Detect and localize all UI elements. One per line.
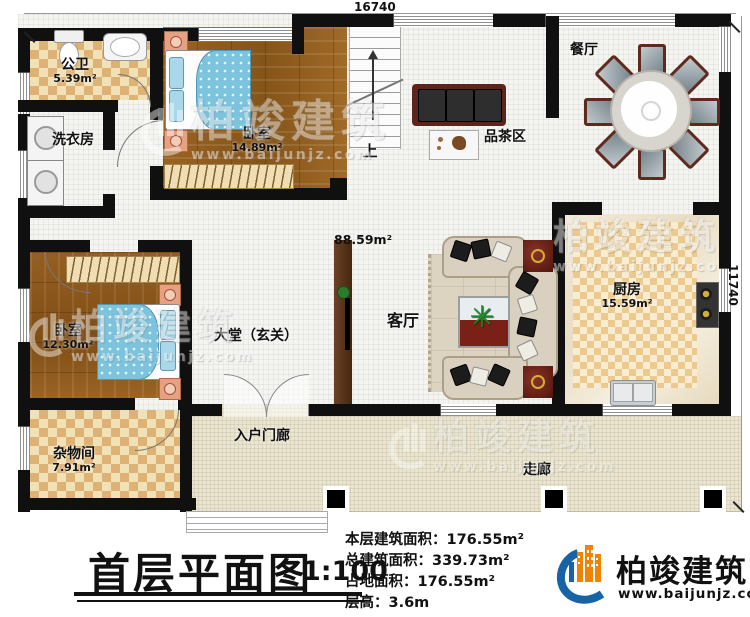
room-label-tea-area: 品茶区 [484,129,526,145]
stat-floor-area: 本层建筑面积：176.55m² [345,528,524,549]
room-name: 走廊 [523,462,551,478]
room-name: 大堂（玄关） [214,328,298,344]
wall [103,112,115,150]
room-name: 客厅 [387,312,419,330]
stairs-arrowhead [368,50,378,59]
wall [18,398,135,410]
wall [151,188,347,200]
brand-url: www.baijunjz.com [618,586,750,602]
room-name: 品茶区 [484,129,526,145]
window [18,288,30,344]
wall [18,100,118,112]
watermark-name: 柏竣建筑 [553,220,719,256]
stove-burner [700,288,712,300]
stat-label: 本层建筑面积： [345,532,447,548]
sofa-cushion [474,89,502,122]
pillow [160,341,176,371]
wall [693,202,731,215]
room-name: 入户门廊 [234,428,290,444]
window [440,404,498,416]
room-label-storage: 杂物间 7.91m² [52,446,95,475]
wall [180,240,192,412]
room-label-bathroom: 公卫 5.39m² [53,57,96,86]
room-label-entry-porch: 入户门廊 [234,428,290,444]
room-name: 洗衣房 [52,132,94,148]
room-name: 卧室 [231,126,282,142]
dimension-line-right [741,16,742,510]
stat-value: 176.55m² [447,532,524,548]
brand-name: 柏竣建筑 [616,546,748,591]
window [719,26,731,74]
sofa-cushion [446,89,474,122]
dining-chair [638,148,666,180]
stairs-up-label: 上 [362,143,377,160]
room-label-corridor: 走廊 [523,462,551,478]
pillow [169,90,184,122]
dimension-right: 11740 [726,264,740,306]
side-table [523,366,553,398]
wall [308,404,440,416]
pillow [169,57,184,89]
column [704,490,722,508]
room-name: 餐厅 [570,42,598,58]
wall [496,404,602,416]
stat-value: 3.6m [389,595,430,611]
room-label-living: 客厅 [387,312,419,330]
title-underline-thin [77,600,365,602]
stat-label: 层高： [345,595,389,611]
wall [150,41,163,112]
watermark-clip: 柏竣建筑 www.baijunjz.com [553,216,719,278]
room-area: 5.39m² [53,73,96,86]
wall [719,72,731,268]
stat-land-area: 占地面积：176.55m² [345,570,495,591]
room-area: 15.59m² [601,298,652,311]
pillow [160,310,176,340]
wall [719,312,731,416]
wall [292,14,393,27]
sofa-pillow [516,316,537,337]
column [327,490,345,508]
steps [186,511,328,533]
watermark-url: www.baijunjz.com [553,259,719,275]
room-area: 7.91m² [52,462,95,475]
window [393,14,495,27]
nightstand [159,378,181,400]
wall [18,498,196,510]
wall [330,178,347,200]
room-label-bedroom2: 卧室 12.30m² [42,323,93,352]
plant-icon: ✳ [466,302,498,334]
room-label-laundry: 洗衣房 [52,132,94,148]
room-area: 12.30m² [42,339,93,352]
tea-cup [438,137,443,142]
wall [18,240,90,252]
hall-area-label: 88.59m² [334,232,392,247]
room-label-bedroom1: 卧室 14.89m² [231,126,282,155]
kitchen-sink-basin [613,383,633,402]
stat-total-area: 总建筑面积：339.73m² [345,549,509,570]
window [18,426,30,472]
wall [493,14,545,27]
room-name: 杂物间 [52,446,95,462]
room-name: 卧室 [42,323,93,339]
stat-floor-height: 层高：3.6m [345,591,429,612]
wardrobe [164,164,294,189]
column [545,490,563,508]
bed-blanket [196,50,251,130]
stairs-arrow [372,58,374,120]
tv [345,298,350,350]
stat-value: 176.55m² [418,574,495,590]
nightstand [159,284,181,306]
stove-burner [700,308,712,320]
bed-blanket [97,304,159,380]
wall [672,404,731,416]
room-name: 公卫 [53,57,96,73]
room-label-dining: 餐厅 [570,42,598,58]
brand-logo-icon [556,540,610,604]
title-underline [74,592,362,596]
wall [150,112,163,120]
room-name: 厨房 [601,282,652,298]
stat-value: 339.73m² [432,553,509,569]
stairs [349,27,401,149]
room-area: 14.89m² [231,142,282,155]
side-table [523,240,553,272]
floorplan-page: ✳ 公卫 5.39m² 洗衣房 卧室 14.89m² 餐厅 [0,0,750,617]
wall [180,398,192,512]
floorplan: ✳ 公卫 5.39m² 洗衣房 卧室 14.89m² 餐厅 [0,0,750,535]
dining-chair [688,98,720,126]
stat-label: 总建筑面积： [345,553,432,569]
washing-machine-door [34,170,58,194]
sofa-cushion [418,89,446,122]
nightstand [164,130,188,152]
up-text: 上 [362,143,377,160]
window [545,14,677,27]
stat-label: 占地面积： [345,574,418,590]
wall [18,206,115,218]
dimension-top: 16740 [354,0,396,14]
sofa-pillow [470,238,491,259]
room-label-kitchen: 厨房 15.59m² [601,282,652,311]
wall [103,194,115,206]
tea-cup [437,146,441,150]
kitchen-sink-basin [633,383,653,402]
wall [546,16,559,118]
bathroom-sink-basin [110,37,140,57]
wall [18,342,30,426]
dining-table-center [641,101,661,121]
window [198,28,296,41]
room-label-foyer: 大堂（玄关） [214,328,298,344]
tea-set [452,136,466,150]
